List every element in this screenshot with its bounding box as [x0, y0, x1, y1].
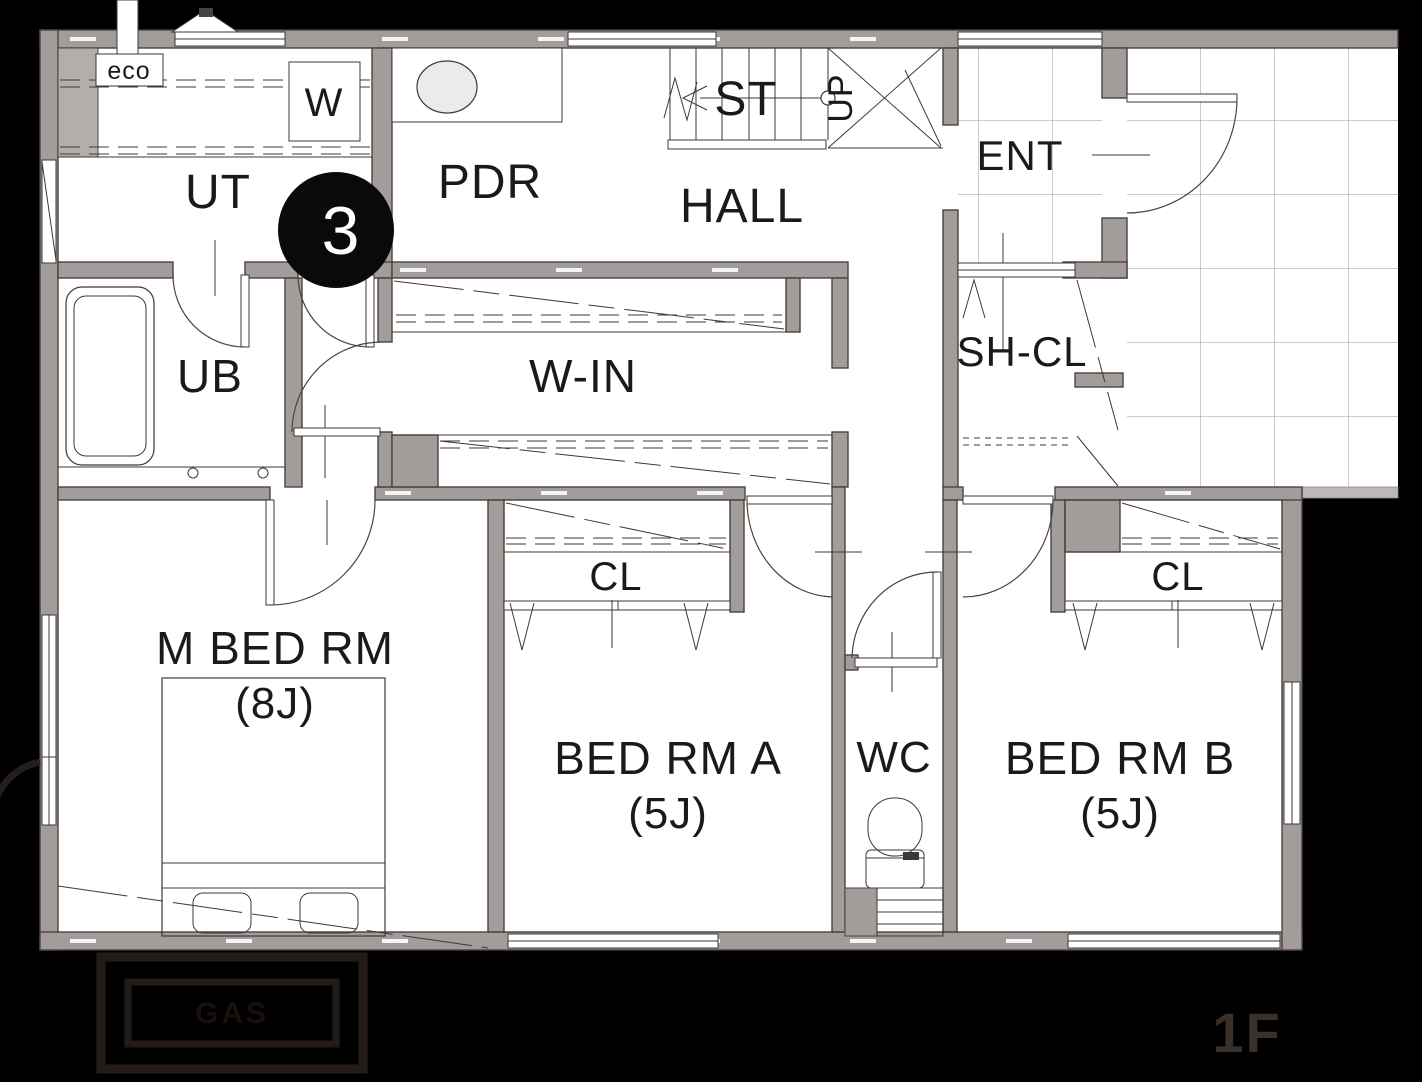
room-label-win: W-IN [529, 350, 637, 402]
room-size-bedroom-b: (5J) [1080, 789, 1160, 838]
sink-basin [417, 61, 477, 113]
meter-label: GAS [195, 997, 269, 1030]
window-top-ent [958, 32, 1102, 46]
room-label-bedroom-b: BED RM B [1005, 732, 1235, 784]
window-bottom-bedroom-a [508, 934, 718, 948]
room-label-ub: UB [177, 350, 243, 402]
window-swing-mark [0, 762, 40, 816]
plan-number: 3 [322, 193, 361, 269]
exterior-annotations: GAS 1F [101, 957, 1282, 1069]
window-top-ut [172, 8, 285, 46]
room-label-shcl: SH-CL [956, 328, 1087, 375]
toilet-controls [903, 852, 919, 860]
powder-room [392, 48, 562, 122]
vent-pipe [117, 0, 138, 54]
room-size-bedroom-a: (5J) [628, 789, 708, 838]
room-label-hall: HALL [680, 180, 804, 233]
wc-counter [845, 888, 877, 936]
stair-handrail [668, 140, 826, 149]
window-left-ut [42, 160, 56, 263]
window-bottom-bedroom-b [1068, 934, 1280, 948]
washer-label: W [305, 81, 344, 125]
eco-label: eco [107, 57, 150, 85]
plan-number-badge: 3 [278, 172, 394, 288]
floor-plan-drawing: UT PDR HALL ST UP ENT SH-CL UB W-IN CL C… [0, 0, 1422, 1082]
floor-plan-page: UT PDR HALL ST UP ENT SH-CL UB W-IN CL C… [0, 0, 1422, 1082]
stair-up-label: UP [822, 73, 860, 122]
ut-cabinet [58, 48, 98, 157]
room-label-st: ST [714, 73, 777, 126]
window-left-master [0, 615, 56, 825]
room-label-master: M BED RM [156, 622, 394, 674]
vent-cap [199, 8, 213, 17]
room-label-cl-b: CL [1151, 555, 1204, 599]
room-label-ut: UT [185, 166, 251, 219]
room-label-ent: ENT [977, 132, 1064, 179]
room-label-cl-a: CL [589, 555, 642, 599]
room-size-master: (8J) [235, 679, 315, 728]
floor-label: 1F [1212, 1001, 1281, 1064]
room-label-pdr: PDR [438, 156, 542, 209]
room-label-bedroom-a: BED RM A [554, 732, 782, 784]
window-right-bedroom-b [1284, 682, 1300, 824]
window-top-hall [568, 32, 716, 46]
room-label-wc: WC [856, 733, 931, 782]
